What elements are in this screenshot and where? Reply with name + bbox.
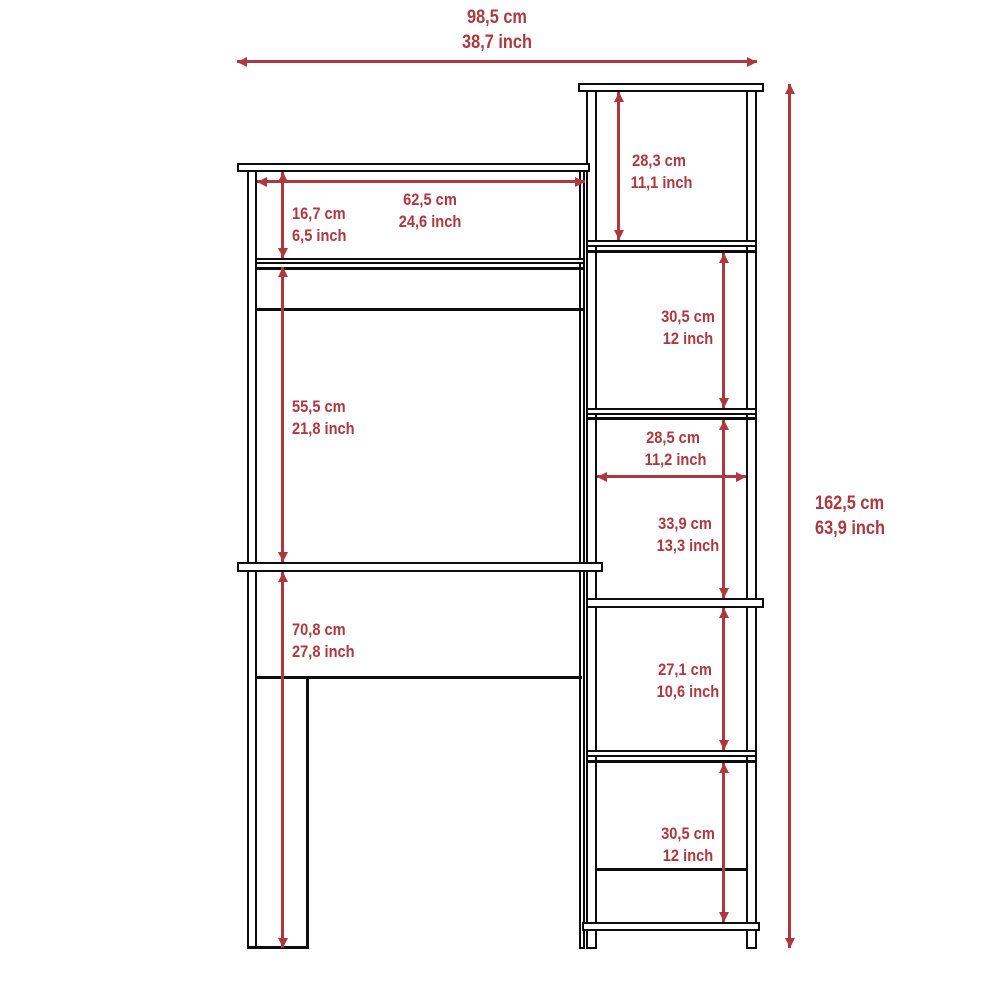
label-desk-clearance-cm: 55,5 cm (292, 396, 355, 418)
label-cubby-5: 30,5 cm 12 inch (660, 823, 715, 867)
label-cubby-1-inch: 11,1 inch (631, 172, 688, 194)
dim-arrow-cubby-4 (722, 608, 725, 750)
label-cubby-3-inch: 13,3 inch (657, 535, 714, 557)
label-cubby-width-cm: 28,5 cm (645, 427, 702, 449)
desk-hutch-top-board (237, 163, 590, 172)
bookcase-shelf-2-line (586, 417, 757, 420)
label-cubby-1-cm: 28,3 cm (631, 150, 688, 172)
desk-hutch-shelf-underline (255, 267, 585, 270)
label-cubby-4-inch: 10,6 inch (657, 681, 714, 703)
bookcase-shelf-2-board (586, 408, 757, 415)
label-cubby-width-inch: 11,2 inch (645, 449, 702, 471)
dim-arrow-hutch-opening-width (257, 180, 585, 183)
label-cubby-5-cm: 30,5 cm (660, 823, 715, 845)
label-overall-height-cm: 162,5 cm (815, 491, 885, 516)
desk-right-side-panel (579, 169, 585, 949)
label-hutch-opening-width-inch: 24,6 inch (378, 211, 481, 233)
label-hutch-opening-height-inch: 6,5 inch (292, 225, 346, 247)
bookcase-shelf-1-line (586, 250, 757, 253)
label-desk-height-cm: 70,8 cm (292, 619, 355, 641)
bookcase-bottom-board (582, 922, 760, 931)
bookcase-shelf-3-board (586, 750, 757, 757)
dim-arrow-cubby-2 (722, 253, 725, 408)
bookcase-left-panel (586, 90, 597, 949)
label-cubby-3-cm: 33,9 cm (657, 513, 714, 535)
label-hutch-opening-height-cm: 16,7 cm (292, 203, 346, 225)
label-cubby-2-inch: 12 inch (660, 328, 715, 350)
label-overall-width-inch: 38,7 inch (428, 30, 566, 55)
label-overall-width: 98,5 cm 38,7 inch (428, 5, 566, 55)
dim-arrow-cubby-5 (722, 763, 725, 922)
furniture-dimension-diagram: 98,5 cm 38,7 inch 162,5 cm 63,9 inch 62,… (0, 0, 1000, 1000)
label-cubby-width: 28,5 cm 11,2 inch (645, 427, 702, 471)
label-desk-clearance-inch: 21,8 inch (292, 418, 355, 440)
dim-arrow-cubby-width (597, 475, 746, 478)
label-overall-width-cm: 98,5 cm (428, 5, 566, 30)
label-hutch-opening-width-cm: 62,5 cm (378, 189, 481, 211)
desk-left-side-panel (247, 169, 257, 949)
label-cubby-2: 30,5 cm 12 inch (660, 306, 715, 350)
bookcase-mid-shelf-board (586, 598, 764, 608)
dim-arrow-overall-width (237, 60, 757, 63)
desk-top-board (237, 562, 603, 572)
label-overall-height: 162,5 cm 63,9 inch (815, 491, 885, 541)
bookcase-shelf-3-line (586, 760, 757, 763)
dim-arrow-overall-height (788, 84, 791, 948)
dim-arrow-cubby-1 (617, 92, 620, 240)
label-cubby-5-inch: 12 inch (660, 845, 715, 867)
desk-hutch-rail-line (255, 308, 585, 311)
label-desk-height: 70,8 cm 27,8 inch (292, 619, 355, 663)
dim-arrow-desk-clearance (281, 267, 284, 562)
label-hutch-opening-height: 16,7 cm 6,5 inch (292, 203, 346, 247)
dim-arrow-cubby-3 (722, 420, 725, 598)
label-desk-height-inch: 27,8 inch (292, 641, 355, 663)
label-cubby-1: 28,3 cm 11,1 inch (631, 150, 688, 194)
bookcase-shelf-1-board (586, 240, 757, 247)
desk-hutch-shelf-board (255, 258, 585, 264)
label-desk-clearance: 55,5 cm 21,8 inch (292, 396, 355, 440)
desk-left-leg-edge-line (306, 676, 309, 949)
label-cubby-2-cm: 30,5 cm (660, 306, 715, 328)
label-overall-height-inch: 63,9 inch (815, 516, 885, 541)
label-hutch-opening-width: 62,5 cm 24,6 inch (378, 189, 481, 233)
bookcase-right-panel (746, 90, 757, 949)
dim-arrow-hutch-opening-height (281, 172, 284, 258)
dim-arrow-desk-height (281, 572, 284, 948)
label-cubby-4: 27,1 cm 10,6 inch (657, 659, 714, 703)
label-cubby-4-cm: 27,1 cm (657, 659, 714, 681)
bookcase-top-board (578, 83, 764, 92)
label-cubby-3: 33,9 cm 13,3 inch (657, 513, 714, 557)
desk-apron-bottom-line (255, 676, 582, 679)
